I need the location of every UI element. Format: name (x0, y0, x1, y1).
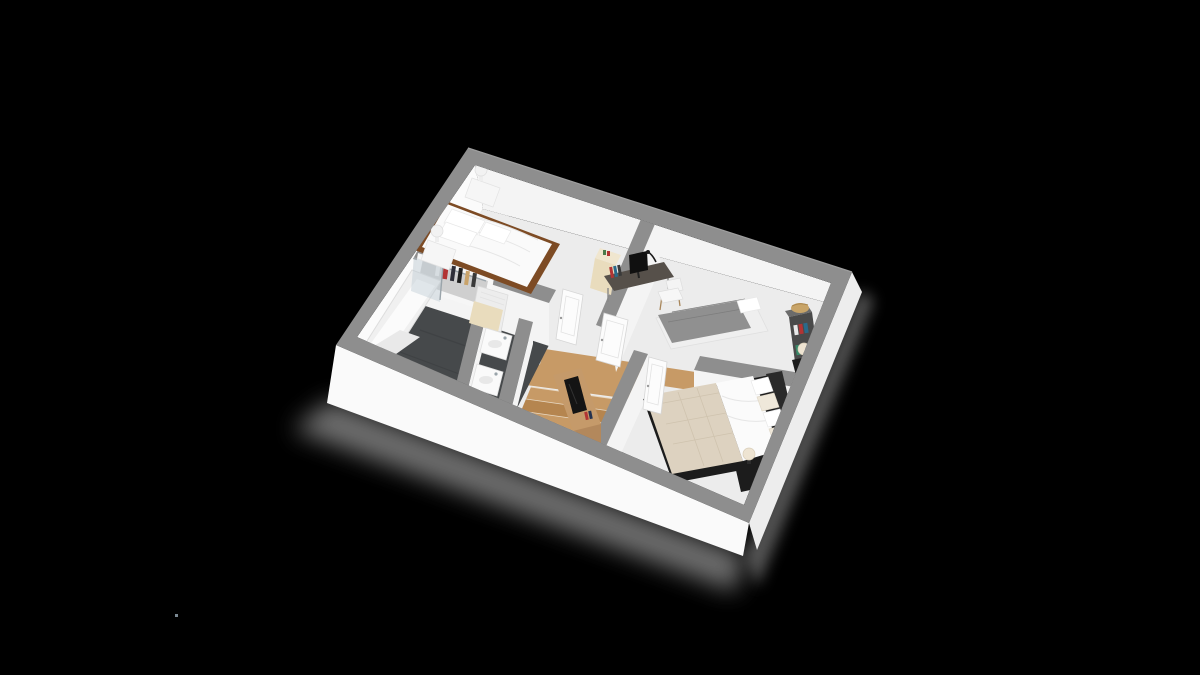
monitor (629, 251, 648, 274)
door-handle (601, 339, 603, 341)
faucet (494, 372, 497, 375)
table-lamp (743, 448, 755, 460)
table-lamp (431, 225, 443, 237)
stray-pixel-artifact (175, 614, 178, 617)
door-handle (560, 317, 562, 319)
floor-plan-render (0, 0, 1200, 675)
door-handle (647, 385, 649, 387)
faucet (503, 336, 506, 339)
screenshot-canvas (0, 0, 1200, 675)
